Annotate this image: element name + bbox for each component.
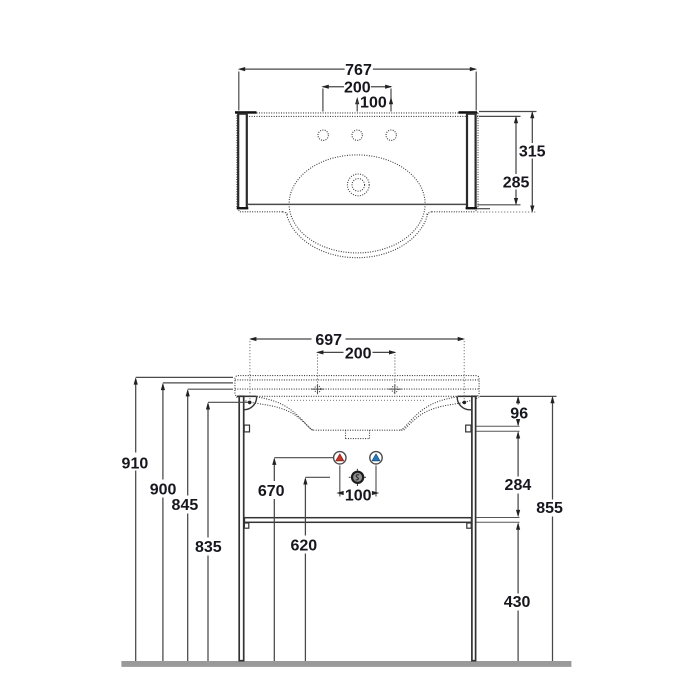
svg-text:697: 697 — [315, 332, 342, 349]
svg-text:96: 96 — [510, 405, 528, 422]
svg-text:855: 855 — [536, 500, 563, 517]
svg-text:315: 315 — [519, 143, 546, 160]
svg-text:767: 767 — [345, 62, 372, 79]
svg-text:620: 620 — [290, 537, 317, 554]
svg-text:845: 845 — [172, 497, 199, 514]
svg-text:100: 100 — [360, 94, 387, 111]
svg-text:285: 285 — [503, 175, 530, 192]
svg-text:910: 910 — [122, 455, 149, 472]
svg-text:430: 430 — [504, 594, 531, 611]
svg-text:835: 835 — [195, 539, 222, 556]
svg-text:670: 670 — [258, 483, 285, 500]
svg-text:200: 200 — [345, 345, 372, 362]
svg-text:100: 100 — [345, 488, 372, 505]
svg-text:284: 284 — [505, 477, 532, 494]
svg-text:900: 900 — [150, 481, 177, 498]
